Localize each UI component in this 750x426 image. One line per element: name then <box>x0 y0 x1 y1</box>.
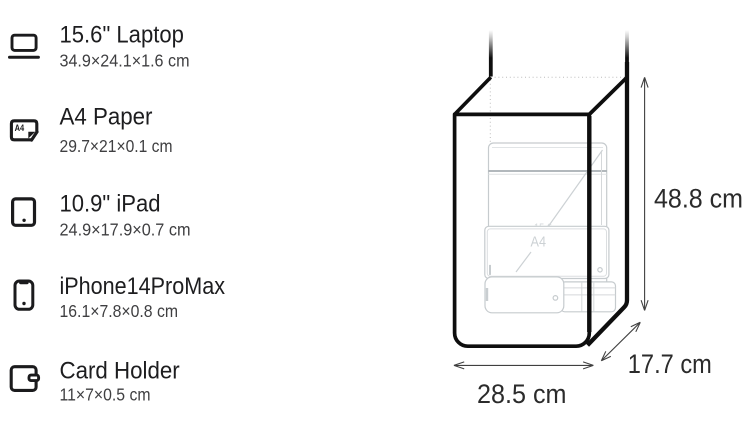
svg-text:29.7×21×0.1 cm: 29.7×21×0.1 cm <box>60 136 173 156</box>
svg-text:16.1×7.8×0.8 cm: 16.1×7.8×0.8 cm <box>60 301 179 321</box>
svg-text:24.9×17.9×0.7 cm: 24.9×17.9×0.7 cm <box>60 220 191 240</box>
svg-text:10.9" iPad: 10.9" iPad <box>60 191 161 218</box>
svg-text:15.6" Laptop: 15.6" Laptop <box>60 21 184 48</box>
svg-text:A4: A4 <box>531 235 547 251</box>
svg-text:11×7×0.5 cm: 11×7×0.5 cm <box>60 385 151 405</box>
svg-text:Card Holder: Card Holder <box>60 358 180 385</box>
svg-text:17.7 cm: 17.7 cm <box>628 349 712 379</box>
svg-text:48.8 cm: 48.8 cm <box>654 184 743 214</box>
svg-text:34.9×24.1×1.6 cm: 34.9×24.1×1.6 cm <box>60 51 190 71</box>
svg-text:28.5 cm: 28.5 cm <box>477 379 567 409</box>
svg-text:iPhone14ProMax: iPhone14ProMax <box>60 273 226 300</box>
svg-text:A4: A4 <box>15 123 25 133</box>
svg-text:A4 Paper: A4 Paper <box>60 104 153 131</box>
